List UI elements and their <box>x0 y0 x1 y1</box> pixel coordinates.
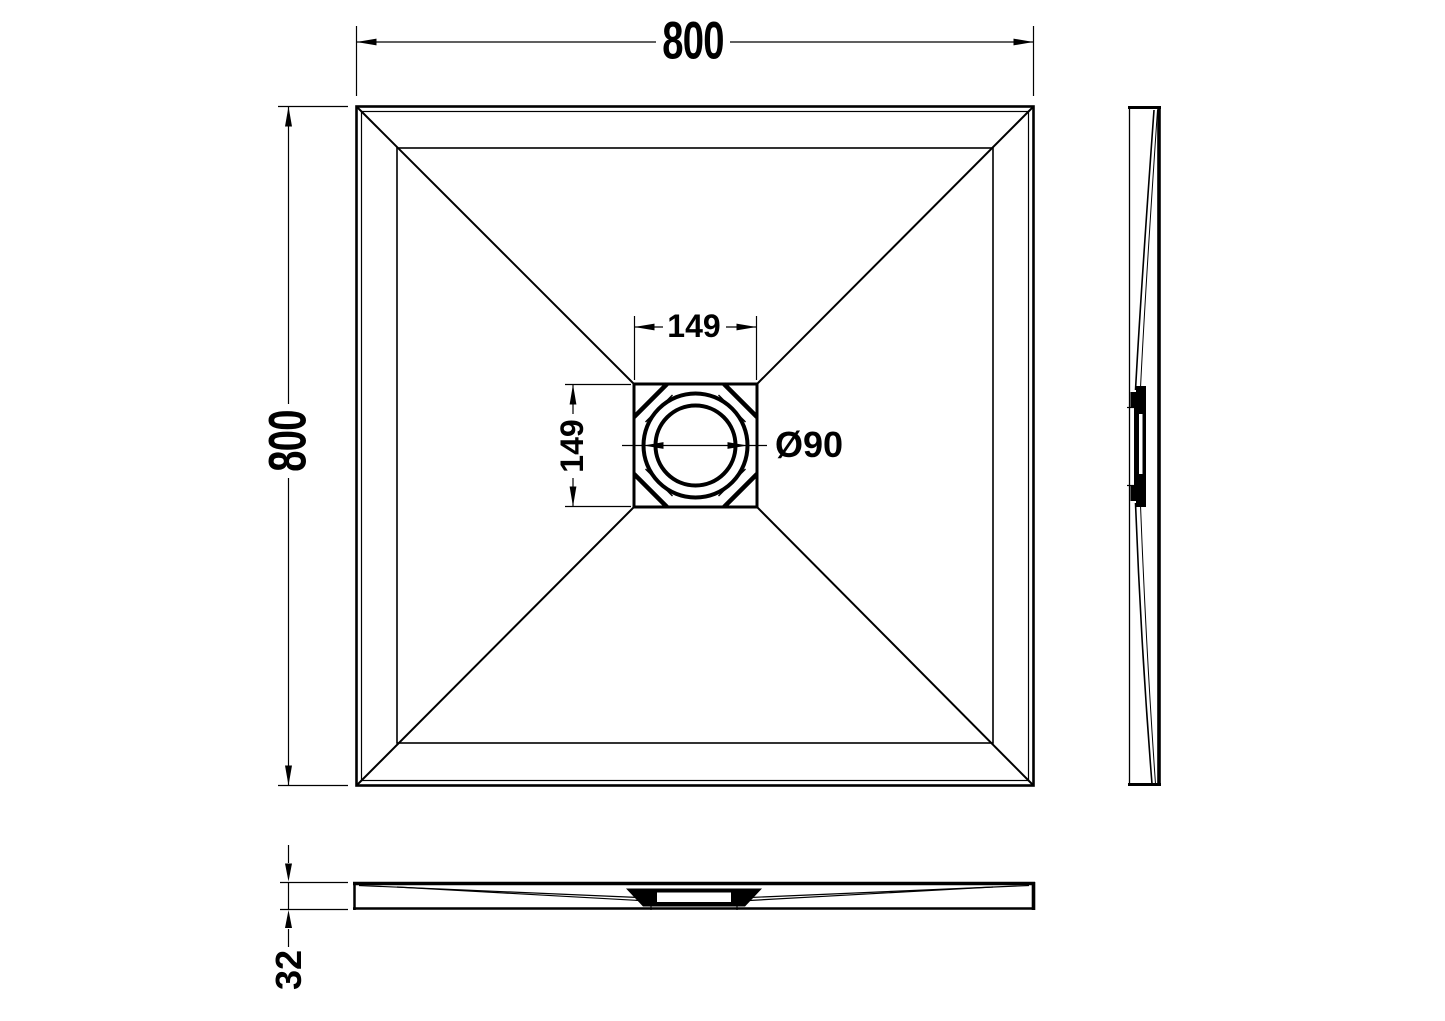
arrowhead <box>285 864 292 882</box>
drain-profile-slot <box>1139 414 1143 474</box>
drain-profile-boss <box>1131 386 1147 507</box>
dim-label-overall-width: 800 <box>662 15 724 68</box>
section-slope-line <box>740 887 993 901</box>
dim-label-drain-diameter: Ø90 <box>775 427 843 463</box>
arrowhead <box>570 385 577 405</box>
profile-slope-line <box>1136 110 1155 390</box>
arrowhead <box>1014 39 1034 46</box>
profile-slope-line <box>1141 110 1158 388</box>
dim-label-tray-thickness: 32 <box>271 950 307 990</box>
dim-tray-thickness <box>280 845 348 947</box>
drawing-linework <box>0 0 1445 1021</box>
arrowhead <box>285 910 292 928</box>
side-view-bottom <box>353 882 1035 910</box>
arrowhead <box>737 324 757 331</box>
technical-drawing-canvas: 800 800 149 149 Ø90 32 <box>0 0 1445 1021</box>
side-view-right <box>1127 106 1161 786</box>
arrowhead <box>570 487 577 507</box>
dim-label-drain-width: 149 <box>667 310 720 342</box>
arrowhead <box>285 107 292 127</box>
arrowhead <box>635 324 655 331</box>
arrowhead <box>644 442 664 449</box>
arrowhead <box>357 39 377 46</box>
dim-label-drain-depth: 149 <box>556 419 588 472</box>
dim-label-overall-depth: 800 <box>262 410 315 472</box>
profile-slope-line <box>1136 503 1153 784</box>
section-slope-line <box>397 887 648 901</box>
drain-section-slot <box>657 893 731 903</box>
arrowhead <box>285 766 292 786</box>
arrowhead <box>728 442 748 449</box>
